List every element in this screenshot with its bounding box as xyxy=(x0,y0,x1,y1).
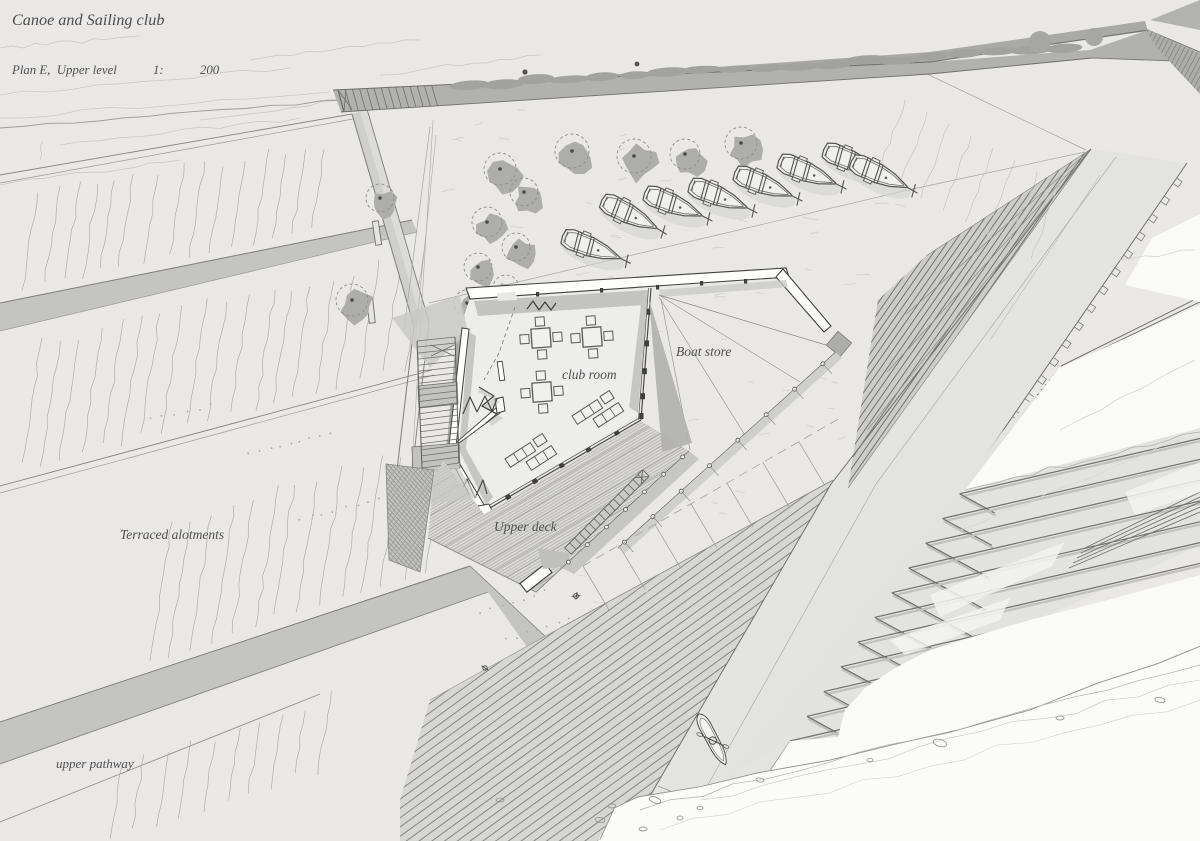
svg-text:upper pathway: upper pathway xyxy=(56,756,134,771)
svg-text:Plan E, Upper level: Plan E, Upper level xyxy=(11,63,117,77)
svg-text:200: 200 xyxy=(200,63,220,77)
svg-text:Boat store: Boat store xyxy=(676,344,731,359)
svg-text:Upper deck: Upper deck xyxy=(494,519,558,534)
svg-text:Canoe and Sailing club: Canoe and Sailing club xyxy=(12,11,164,29)
svg-text:1:: 1: xyxy=(153,63,164,77)
svg-text:club room: club room xyxy=(562,367,617,382)
svg-text:Terraced alotments: Terraced alotments xyxy=(120,527,224,542)
